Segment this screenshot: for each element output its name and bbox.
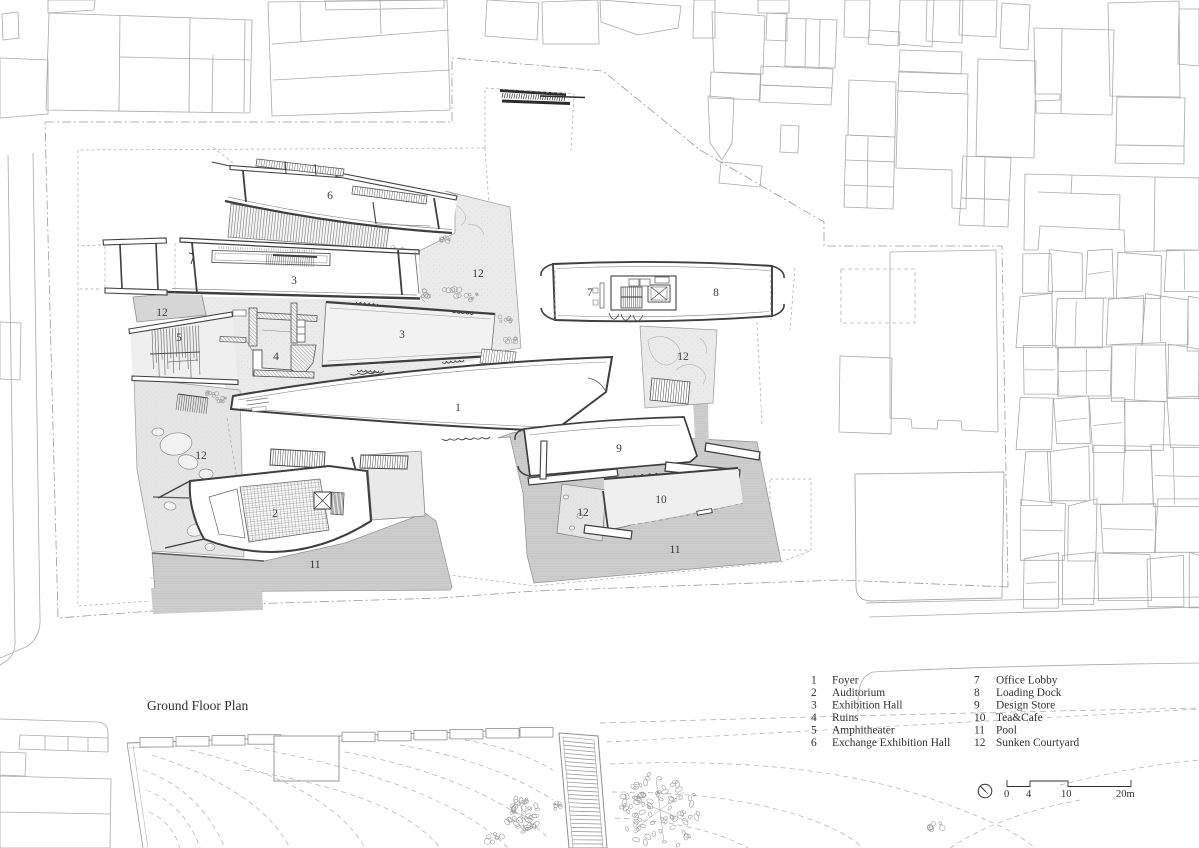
svg-text:6: 6 [327, 190, 333, 202]
svg-text:11: 11 [974, 724, 985, 736]
svg-text:9: 9 [616, 443, 622, 455]
svg-text:Office Lobby: Office Lobby [996, 675, 1058, 687]
svg-text:10: 10 [1061, 789, 1072, 800]
svg-text:4: 4 [1026, 789, 1032, 800]
svg-text:Design Store: Design Store [996, 699, 1055, 711]
svg-text:12: 12 [974, 737, 986, 749]
svg-text:2: 2 [272, 508, 278, 520]
svg-text:1: 1 [811, 675, 817, 687]
svg-text:Exhibition Hall: Exhibition Hall [832, 699, 903, 711]
svg-text:8: 8 [713, 287, 719, 299]
svg-text:Sunken Courtyard: Sunken Courtyard [996, 737, 1080, 749]
svg-text:3: 3 [291, 275, 297, 287]
svg-text:12: 12 [472, 268, 484, 280]
svg-text:8: 8 [974, 687, 980, 699]
svg-text:Ruins: Ruins [832, 712, 859, 724]
svg-text:1: 1 [455, 402, 461, 414]
svg-text:10: 10 [974, 712, 986, 724]
svg-text:5: 5 [811, 724, 817, 736]
svg-text:9: 9 [974, 699, 980, 711]
svg-text:10: 10 [655, 494, 667, 506]
svg-text:5: 5 [176, 332, 182, 344]
svg-text:7: 7 [974, 675, 980, 687]
svg-text:3: 3 [399, 329, 405, 341]
svg-text:12: 12 [577, 507, 589, 519]
svg-text:2: 2 [811, 687, 817, 699]
svg-text:7: 7 [587, 287, 593, 299]
svg-text:11: 11 [309, 559, 320, 571]
svg-text:Ground Floor Plan: Ground Floor Plan [147, 698, 249, 713]
svg-text:4: 4 [811, 712, 817, 724]
svg-text:Foyer: Foyer [832, 675, 859, 687]
svg-text:12: 12 [195, 450, 207, 462]
svg-text:12: 12 [677, 351, 689, 363]
svg-text:11: 11 [669, 544, 680, 556]
svg-text:0: 0 [1004, 789, 1009, 800]
svg-text:4: 4 [273, 351, 279, 363]
svg-text:20m: 20m [1116, 789, 1135, 800]
svg-text:Pool: Pool [996, 724, 1017, 736]
svg-text:6: 6 [811, 737, 817, 749]
svg-text:Loading Dock: Loading Dock [996, 687, 1062, 699]
svg-text:3: 3 [811, 699, 817, 711]
svg-text:Auditorium: Auditorium [832, 687, 885, 699]
svg-text:Amphitheater: Amphitheater [832, 724, 895, 736]
svg-text:Exchange Exhibition Hall: Exchange Exhibition Hall [832, 737, 950, 749]
svg-text:Tea&Cafe: Tea&Cafe [996, 712, 1043, 724]
svg-text:12: 12 [156, 307, 168, 319]
